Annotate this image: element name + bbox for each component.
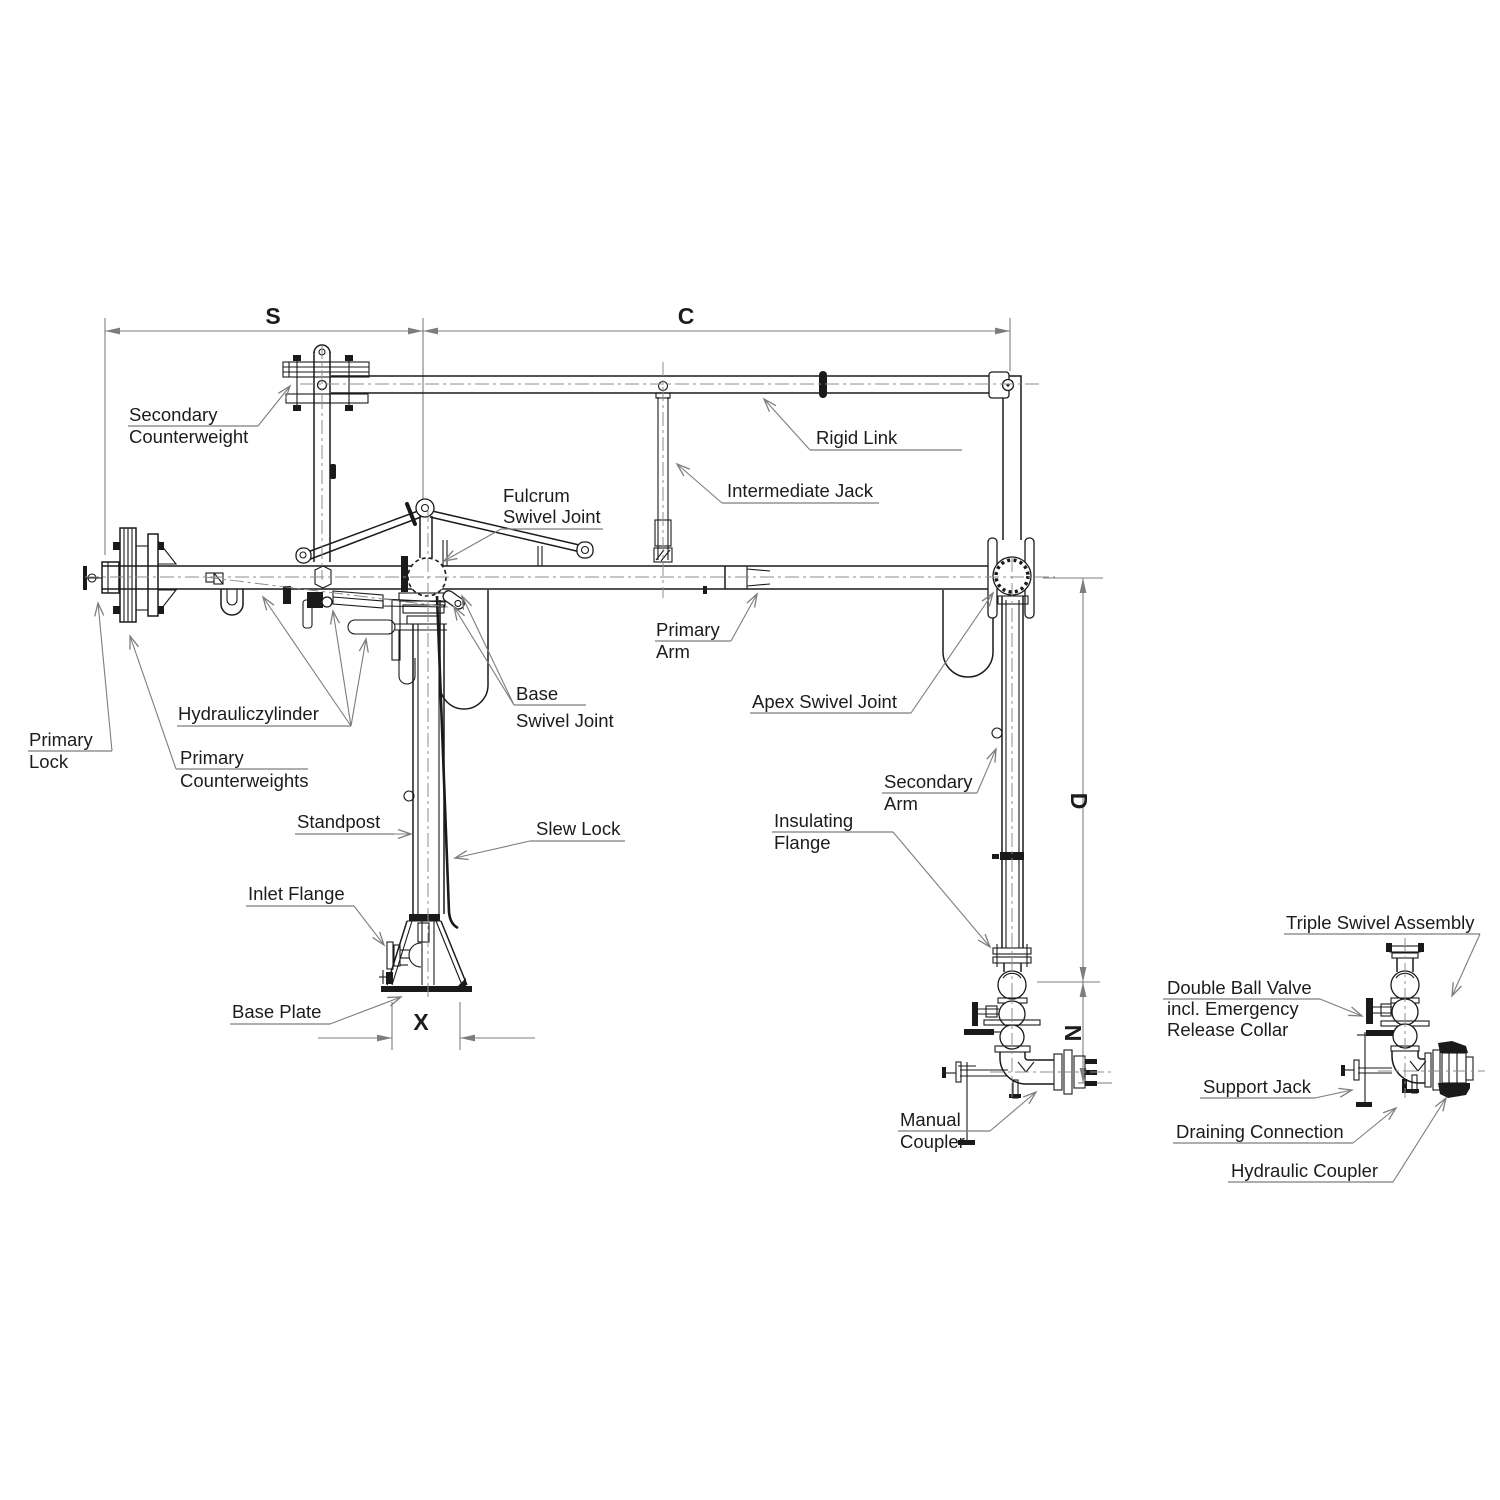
label-manual-coupler-line2: Coupler [900, 1131, 965, 1152]
label-base-plate: Base Plate [232, 1001, 321, 1022]
label-triple-swivel-assembly: Triple Swivel Assembly [1286, 912, 1475, 933]
label-draining-connection: Draining Connection [1176, 1121, 1344, 1142]
label-secondary-counterweight-line2: Counterweight [129, 426, 248, 447]
dim-label-x: X [413, 1009, 429, 1035]
dim-label-c: C [678, 303, 695, 329]
label-primary-arm-line1: Primary [656, 619, 720, 640]
label-apex-swivel-joint: Apex Swivel Joint [752, 691, 897, 712]
label-support-jack: Support Jack [1203, 1076, 1312, 1097]
label-base-swivel-joint-line2: Swivel Joint [516, 710, 614, 731]
label-double-ball-valve-line3: Release Collar [1167, 1019, 1288, 1040]
label-primary-counterweights-line1: Primary [180, 747, 244, 768]
label-secondary-counterweight-line1: Secondary [129, 404, 218, 425]
label-fulcrum-swivel-joint-line1: Fulcrum [503, 485, 570, 506]
label-primary-counterweights-line2: Counterweights [180, 770, 309, 791]
dim-label-s: S [265, 303, 280, 329]
label-primary-lock-line1: Primary [29, 729, 93, 750]
label-secondary-arm-line1: Secondary [884, 771, 973, 792]
label-hydrauliczylinder: Hydrauliczylinder [178, 703, 319, 724]
label-rigid-link: Rigid Link [816, 427, 898, 448]
label-fulcrum-swivel-joint-line2: Swivel Joint [503, 506, 601, 527]
dim-label-d: D [1066, 793, 1092, 810]
loading-arm-technical-diagram: Secondary Counterweight Rigid Link Inter… [0, 0, 1500, 1500]
label-slew-lock: Slew Lock [536, 818, 621, 839]
label-primary-arm-line2: Arm [656, 641, 690, 662]
label-manual-coupler-line1: Manual [900, 1109, 961, 1130]
diagram-svg: Secondary Counterweight Rigid Link Inter… [0, 0, 1500, 1500]
dim-label-n: N [1060, 1025, 1086, 1042]
label-insulating-flange-line1: Insulating [774, 810, 853, 831]
label-insulating-flange-line2: Flange [774, 832, 831, 853]
label-base-swivel-joint-line1: Base [516, 683, 558, 704]
label-standpost: Standpost [297, 811, 380, 832]
label-double-ball-valve-line2: incl. Emergency [1167, 998, 1299, 1019]
label-secondary-arm-line2: Arm [884, 793, 918, 814]
label-primary-lock-line2: Lock [29, 751, 69, 772]
label-inlet-flange: Inlet Flange [248, 883, 345, 904]
label-double-ball-valve-line1: Double Ball Valve [1167, 977, 1312, 998]
label-hydraulic-coupler: Hydraulic Coupler [1231, 1160, 1378, 1181]
label-intermediate-jack: Intermediate Jack [727, 480, 874, 501]
